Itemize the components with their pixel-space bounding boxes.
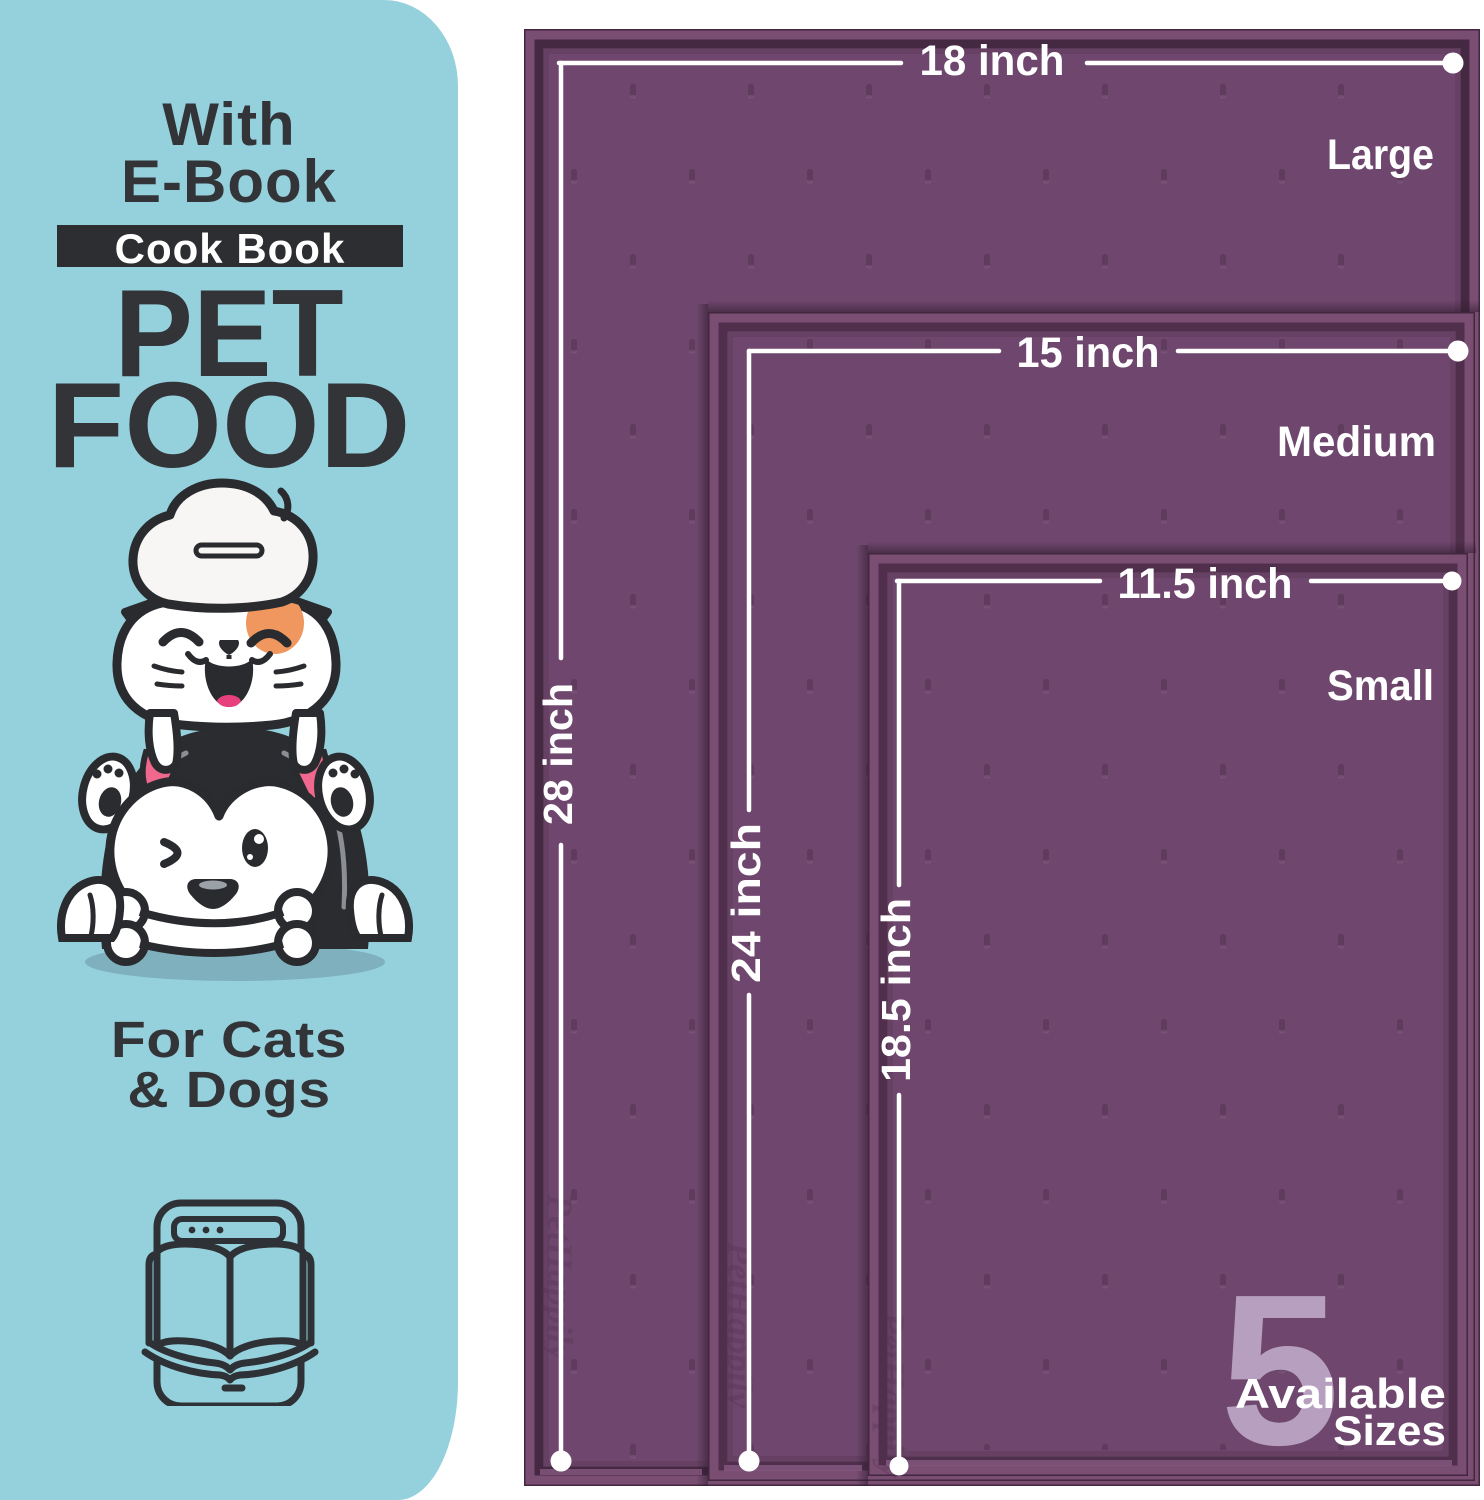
svg-text:Small: Small	[1327, 662, 1434, 710]
svg-text:11.5 inch: 11.5 inch	[1118, 560, 1293, 608]
svg-text:Large: Large	[1327, 131, 1434, 179]
svg-text:PetHappily: PetHappily	[720, 1241, 760, 1409]
svg-text:24 inch: 24 inch	[723, 823, 769, 983]
svg-text:15 inch: 15 inch	[1017, 329, 1160, 377]
svg-text:18.5 inch: 18.5 inch	[873, 898, 919, 1082]
svg-text:28 inch: 28 inch	[535, 683, 581, 825]
svg-text:18 inch: 18 inch	[920, 37, 1065, 85]
svg-text:PetHappily: PetHappily	[872, 1311, 912, 1479]
svg-text:Medium: Medium	[1277, 418, 1436, 466]
svg-text:Sizes: Sizes	[1333, 1407, 1446, 1454]
